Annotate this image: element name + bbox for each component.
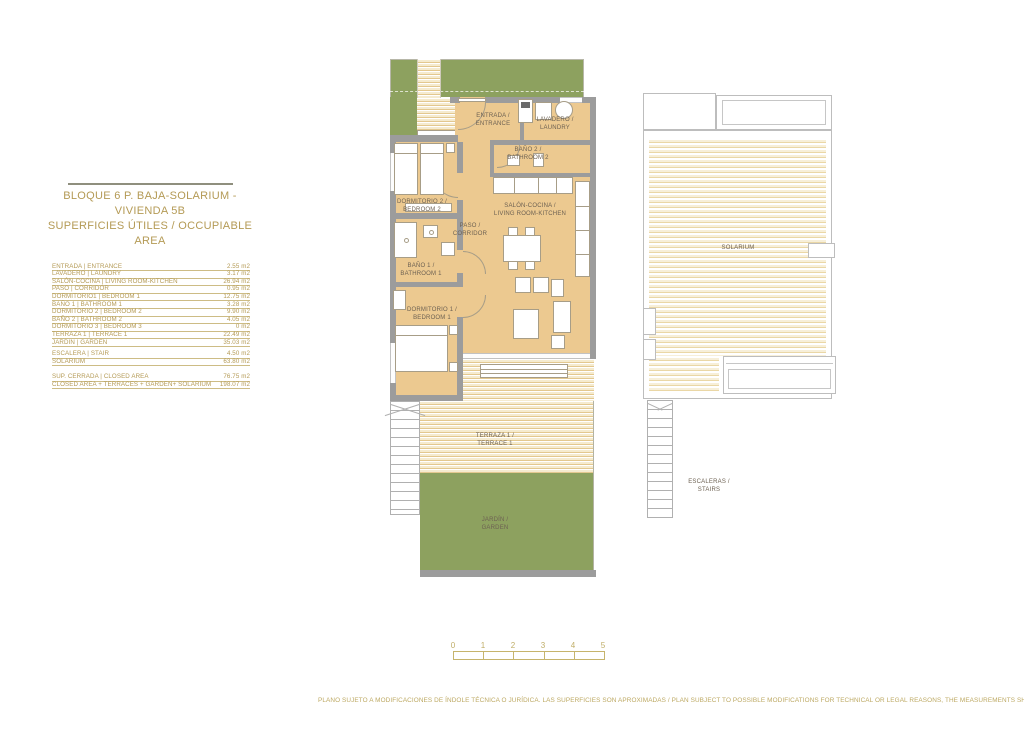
scale-tick-label: 4 (571, 641, 575, 650)
page-title-line1: BLOQUE 6 P. BAJA-SOLARIUM - VIVIENDA 5B (35, 189, 265, 219)
area-row-label: CLOSED AREA + TERRACES + GARDEN+ SOLARIU… (52, 381, 211, 388)
scale-tick-label: 2 (511, 641, 515, 650)
area-table-summary: SUP. CERRADA | CLOSED AREA76.75 m2CLOSED… (52, 374, 250, 389)
kitchen-counter-symbol (493, 177, 573, 194)
area-row-label: BAÑO 1 | BATHROOM 1 (52, 301, 122, 308)
floor-plan-sheet: BLOQUE 6 P. BAJA-SOLARIUM - VIVIENDA 5B … (0, 0, 1024, 732)
scale-segment (514, 652, 544, 659)
pergola-slats (723, 356, 836, 394)
area-row-label: BAÑO 2 | BATHROOM 2 (52, 316, 122, 323)
scale-segment (484, 652, 514, 659)
area-table: ENTRADA | ENTRANCE2.55 m2LAVADERO | LAUN… (52, 263, 250, 389)
area-row-label: JARDIN | GARDEN (52, 339, 107, 346)
coffee-table-symbol (513, 309, 539, 339)
bathroom1-toilet-symbol (441, 242, 455, 256)
area-row-label: DORMITORIO 3 | BEDROOM 3 (52, 323, 142, 330)
area-row-value: 0 m2 (236, 323, 250, 330)
wall-segment (590, 103, 596, 359)
dining-table-symbol (503, 235, 541, 262)
area-row-value: 4.05 m2 (227, 316, 250, 323)
shower-symbol (394, 222, 417, 258)
roof-void-left (643, 93, 716, 130)
rooftop-bench (643, 339, 656, 360)
bed-symbol (394, 143, 418, 195)
scale-ticks: 012345 (453, 641, 603, 651)
scale-segment (545, 652, 575, 659)
solarium-stair (647, 400, 673, 518)
area-row-value: 4.50 m2 (227, 350, 250, 357)
room-label-salon: SALÓN-COCINA / LIVING ROOM-KITCHEN (480, 203, 580, 219)
rooftop-unit (808, 243, 835, 258)
area-row-value: 26.94 m2 (223, 278, 250, 285)
area-row-value: 0.95 m2 (227, 285, 250, 292)
room-label-dormitorio2: DORMITORIO 2 / BEDROOM 2 (391, 199, 453, 215)
wall-segment (457, 142, 463, 173)
room-label-lavadero: LAVADERO / LAUNDRY (525, 117, 585, 133)
wall-segment (390, 135, 458, 142)
sofa-symbol (553, 301, 571, 333)
area-row-value: 35.03 m2 (223, 339, 250, 346)
kitchen-appliance-column-symbol (575, 181, 590, 277)
area-row-label: SUP. CERRADA | CLOSED AREA (52, 373, 149, 380)
area-row-label: PASO | CORRIDOR (52, 285, 109, 292)
area-table-row: CLOSED AREA + TERRACES + GARDEN+ SOLARIU… (52, 382, 250, 390)
page-title: BLOQUE 6 P. BAJA-SOLARIUM - VIVIENDA 5B … (35, 189, 265, 248)
scale-tick-label: 0 (451, 641, 455, 650)
nightstand-symbol (446, 143, 455, 153)
room-label-solarium: SOLARIUM (693, 245, 783, 253)
area-table-rows: ENTRADA | ENTRANCE2.55 m2LAVADERO | LAUN… (52, 263, 250, 366)
scale-tick-label: 3 (541, 641, 545, 650)
area-row-label: SALÓN-COCINA | LIVING ROOM-KITCHEN (52, 278, 178, 285)
roof-void-right (716, 95, 832, 130)
area-row-value: 63.80 m2 (223, 358, 250, 365)
area-row-value: 2.55 m2 (227, 263, 250, 270)
room-label-jardin: JARDÍN / GARDEN (460, 517, 530, 533)
chair-symbol (525, 261, 535, 270)
room-label-paso: PASO / CORRIDOR (445, 223, 495, 239)
room-label-stairs: ESCALERAS / STAIRS (677, 479, 741, 495)
room-label-bano1: BAÑO 1 / BATHROOM 1 (393, 263, 449, 279)
scale-tick-label: 5 (601, 641, 605, 650)
armchair-symbol (515, 277, 531, 293)
room-label-dormitorio1: DORMITORIO 1 / BEDROOM 1 (399, 307, 465, 323)
area-row-value: 198.07 m2 (220, 381, 250, 388)
area-row-value: 22.49 m2 (223, 331, 250, 338)
area-row-label: LAVADERO | LAUNDRY (52, 270, 121, 277)
side-table-symbol (551, 279, 564, 297)
garden-boundary-wall (420, 570, 596, 577)
armchair-symbol (533, 277, 549, 293)
area-table-row: SOLARIUM63.80 m2 (52, 359, 250, 367)
area-row-label: SOLARIUM (52, 358, 85, 365)
terrace-planter-symbol (480, 364, 568, 378)
chair-symbol (508, 261, 518, 270)
tv-unit-symbol (551, 335, 565, 349)
front-garden-side (390, 97, 417, 135)
scale-tick-label: 1 (481, 641, 485, 650)
title-divider (68, 183, 233, 185)
page-title-line2: SUPERFICIES ÚTILES / OCCUPIABLE AREA (35, 219, 265, 249)
area-row-value: 3.17 m2 (227, 270, 250, 277)
area-row-label: DORMITORIO 2 | BEDROOM 2 (52, 308, 142, 315)
scale-segment (454, 652, 484, 659)
solarium-plan: SOLARIUM ESCALERAS / STAIRS (643, 93, 843, 525)
wall-segment (490, 140, 494, 177)
area-row-value: 76.75 m2 (223, 373, 250, 380)
area-row-value: 9.90 m2 (227, 308, 250, 315)
bed-symbol (420, 143, 444, 195)
room-label-terraza1: TERRAZA 1 / TERRACE 1 (460, 433, 530, 449)
area-row-value: 3.28 m2 (227, 301, 250, 308)
ground-floor-plan: ENTRADA / ENTRANCE LAVADERO / LAUNDRY BA… (385, 55, 597, 580)
rooftop-bench (643, 308, 656, 335)
nightstand-symbol (449, 325, 458, 335)
area-row-value: 12.75 m2 (223, 293, 250, 300)
scale-segment (575, 652, 604, 659)
room-label-entrada: ENTRADA / ENTRANCE (465, 113, 521, 129)
scale-bar-rule (453, 651, 605, 660)
disclaimer-text: PLANO SUJETO A MODIFICACIONES DE ÍNDOLE … (318, 697, 1012, 704)
exterior-stair (390, 401, 420, 515)
area-row-label: TERRAZA 1 | TERRACE 1 (52, 331, 127, 338)
scale-bar: 012345 (450, 641, 606, 660)
room-label-bano2: BAÑO 2 / BATHROOM 2 (495, 147, 561, 163)
skylight-frame (722, 100, 826, 125)
area-row-label: ENTRADA | ENTRANCE (52, 263, 122, 270)
area-row-label: ESCALERA | STAIR (52, 350, 109, 357)
area-row-label: DORMITORIO1 | BEDROOM 1 (52, 293, 140, 300)
wall-segment (390, 282, 463, 287)
info-panel: BLOQUE 6 P. BAJA-SOLARIUM - VIVIENDA 5B … (35, 183, 265, 389)
bathroom1-sink-symbol (423, 225, 438, 238)
nightstand-symbol (449, 362, 458, 372)
area-table-row: JARDIN | GARDEN35.03 m2 (52, 339, 250, 347)
double-bed-symbol (395, 325, 448, 372)
solarium-deck-lower (649, 356, 719, 392)
